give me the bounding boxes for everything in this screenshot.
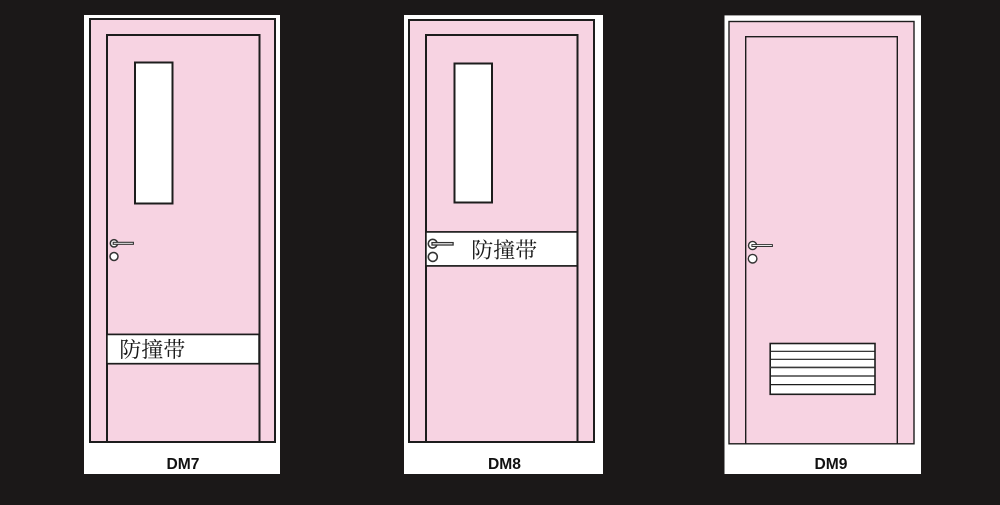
svg-text:DM7: DM7: [167, 456, 200, 473]
svg-text:DM8: DM8: [488, 456, 521, 473]
svg-text:DM9: DM9: [815, 456, 848, 473]
